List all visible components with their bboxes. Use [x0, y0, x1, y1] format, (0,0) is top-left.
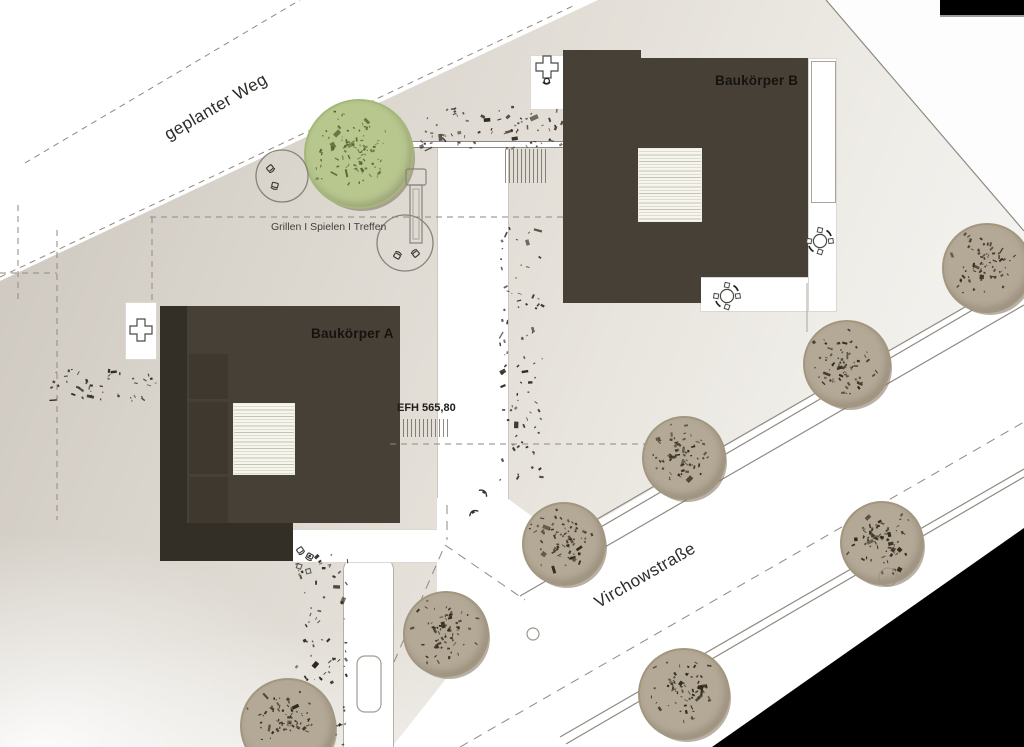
label-grillen-spielen-treffen: Grillen I Spielen I Treffen: [271, 221, 386, 233]
furniture-icons-layer: [0, 0, 1024, 747]
table-cross-icon: [128, 317, 154, 343]
play-tower-icon: [403, 168, 429, 248]
seating-circle-icon: [255, 149, 309, 203]
parked-car-icon: [356, 655, 382, 713]
bench-icon: [478, 488, 490, 496]
table-cross-icon: [534, 54, 560, 88]
table-round-icon: [805, 226, 835, 256]
site-plan-canvas: geplanter Weg Virchowstraße Grillen I Sp…: [0, 0, 1024, 747]
manhole-circle-icon: [878, 567, 898, 587]
label-building-b: Baukörper B: [715, 73, 798, 88]
black-bar-artifact: [940, 0, 1024, 17]
manhole-circle-icon: [526, 627, 540, 641]
table-round-icon: [712, 281, 742, 311]
chairs-icon: [294, 546, 320, 576]
label-efh-level: EFH 565,80: [397, 402, 456, 414]
label-building-a: Baukörper A: [311, 326, 394, 341]
bench-icon: [467, 508, 479, 516]
